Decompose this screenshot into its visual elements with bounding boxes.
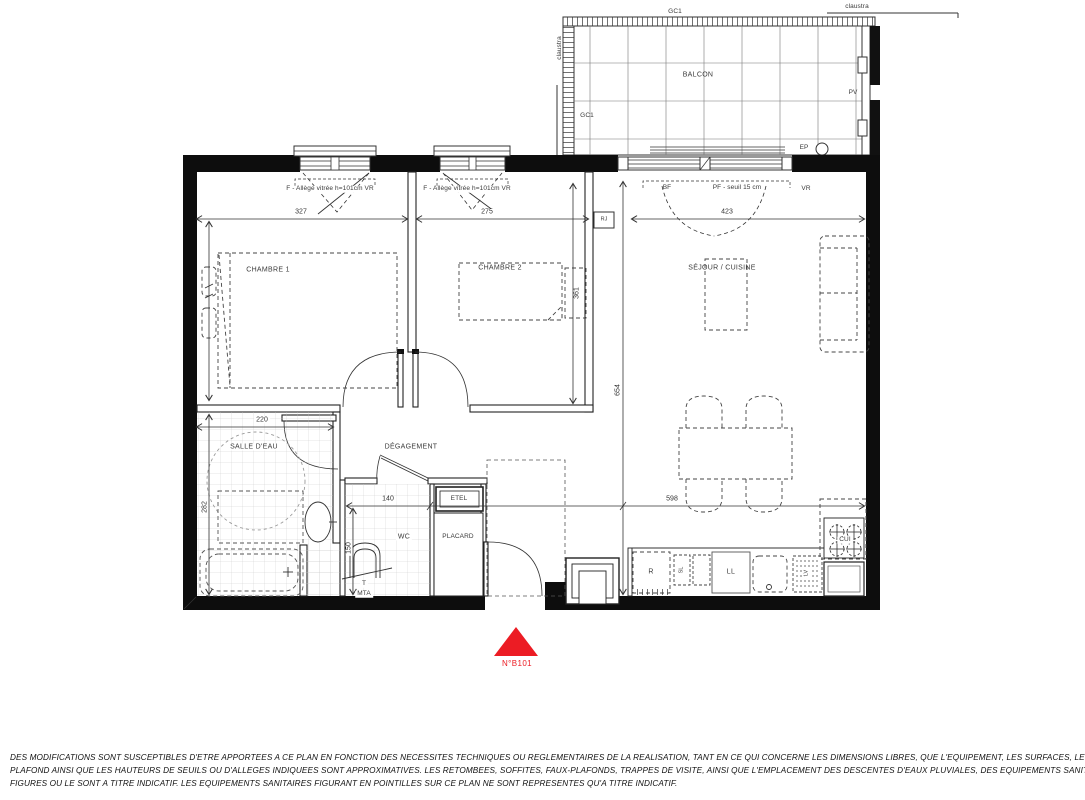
room-label-chambre1: CHAMBRE 1 (246, 267, 290, 274)
dim-140: 140 (380, 496, 396, 503)
label-gc1-side: GC1 (580, 113, 594, 120)
room-label-placard: PLACARD (442, 534, 473, 541)
label-mta: MTA (355, 591, 373, 598)
disclaimer-line-3: FIGURES OU LE SONT A TITRE INDICATIF. LE… (10, 779, 677, 788)
room-label-wc: WC (396, 534, 412, 541)
kitchen-label-cooktop: CUI (837, 537, 853, 544)
kitchen-label-sl: SL (679, 567, 685, 574)
label-vr: VR (801, 186, 810, 193)
room-label-chambre2: CHAMBRE 2 (476, 265, 524, 272)
dim-275: 275 (479, 209, 495, 216)
label-t: T (360, 581, 368, 588)
kitchen-group (628, 499, 866, 596)
living-furniture (679, 236, 869, 512)
dim-654: 654 (615, 382, 622, 398)
room-label-salle-deau: SALLE D'EAU (228, 444, 280, 451)
balcony-group (557, 13, 958, 155)
unit-number: N°B101 (502, 660, 532, 668)
kitchen-label-dishwasher: LV (804, 568, 810, 578)
dim-361: 361 (574, 285, 581, 301)
dim-598: 598 (664, 496, 680, 503)
disclaimer-line-1: DES MODIFICATIONS SONT SUSCEPTIBLES D'ET… (10, 753, 1085, 762)
room-label-etel: ETEL (451, 496, 468, 503)
kitchen-label-fridge: R (648, 569, 653, 576)
dim-423: 423 (719, 209, 735, 216)
label-gc1-top: GC1 (668, 9, 682, 16)
kitchen-label-washer: LL (727, 569, 735, 576)
label-window-ch2: F - Allège vitrée h=101cm VR (421, 186, 513, 193)
dim-150: 150 (346, 540, 353, 556)
label-rj: RJ (601, 217, 608, 223)
disclaimer-line-2: PLAFOND AINSI QUE LES HAUTEURS DE SEUILS… (10, 766, 1085, 775)
dim-282: 282 (202, 499, 209, 515)
label-ep: EP (800, 145, 809, 152)
floor-plan-drawing (0, 0, 1085, 745)
floor-plan-page: GC1 claustra claustra GC1 BALCON PV EP F… (0, 0, 1085, 800)
entrance-marker-triangle (494, 627, 538, 656)
label-balcon: BALCON (683, 72, 714, 79)
label-bf: BF (663, 185, 672, 192)
room-label-degagement: DÉGAGEMENT (385, 444, 438, 451)
label-window-ch1: F - Allège vitrée h=101cm VR (284, 186, 376, 193)
label-pv: PV (849, 90, 858, 97)
dim-220: 220 (254, 417, 270, 424)
label-claustra-left: claustra (557, 36, 564, 60)
label-pf: PF - seuil 15 cm (713, 185, 762, 192)
room-label-sejour-cuisine: SÉJOUR / CUISINE (688, 265, 755, 272)
label-claustra-top: claustra (845, 4, 869, 11)
dim-327: 327 (293, 209, 309, 216)
